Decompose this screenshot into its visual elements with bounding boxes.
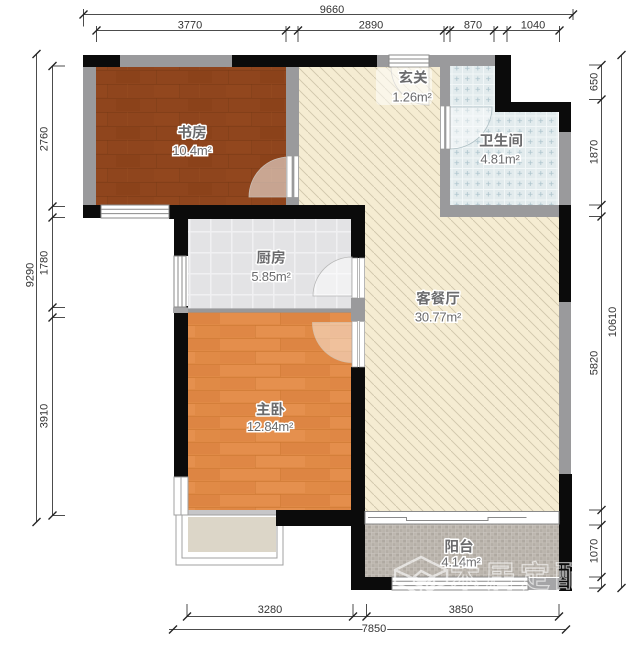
svg-text:2890: 2890 bbox=[359, 20, 383, 32]
svg-text:3770: 3770 bbox=[178, 20, 202, 32]
svg-text:1.26m²: 1.26m² bbox=[392, 89, 432, 104]
svg-text:870: 870 bbox=[464, 20, 482, 32]
svg-text:12.84m²: 12.84m² bbox=[247, 419, 294, 434]
svg-text:4.14m²: 4.14m² bbox=[441, 555, 481, 570]
svg-text:3910: 3910 bbox=[39, 404, 51, 428]
svg-text:1040: 1040 bbox=[521, 20, 545, 32]
svg-text:30.77m²: 30.77m² bbox=[415, 310, 462, 325]
svg-text:9290: 9290 bbox=[25, 263, 37, 287]
svg-text:10.4m²: 10.4m² bbox=[172, 143, 212, 158]
svg-text:10610: 10610 bbox=[607, 307, 619, 338]
svg-text:1070: 1070 bbox=[589, 539, 601, 563]
svg-text:9660: 9660 bbox=[320, 4, 344, 16]
svg-text:3850: 3850 bbox=[449, 604, 473, 616]
svg-text:2760: 2760 bbox=[39, 127, 51, 151]
svg-text:5820: 5820 bbox=[589, 351, 601, 375]
svg-text:650: 650 bbox=[589, 73, 601, 91]
svg-text:7850: 7850 bbox=[362, 623, 386, 635]
svg-text:1870: 1870 bbox=[589, 140, 601, 164]
svg-text:5.85m²: 5.85m² bbox=[251, 269, 291, 284]
svg-text:4.81m²: 4.81m² bbox=[480, 152, 520, 167]
svg-text:1780: 1780 bbox=[39, 251, 51, 275]
svg-text:3280: 3280 bbox=[258, 604, 282, 616]
